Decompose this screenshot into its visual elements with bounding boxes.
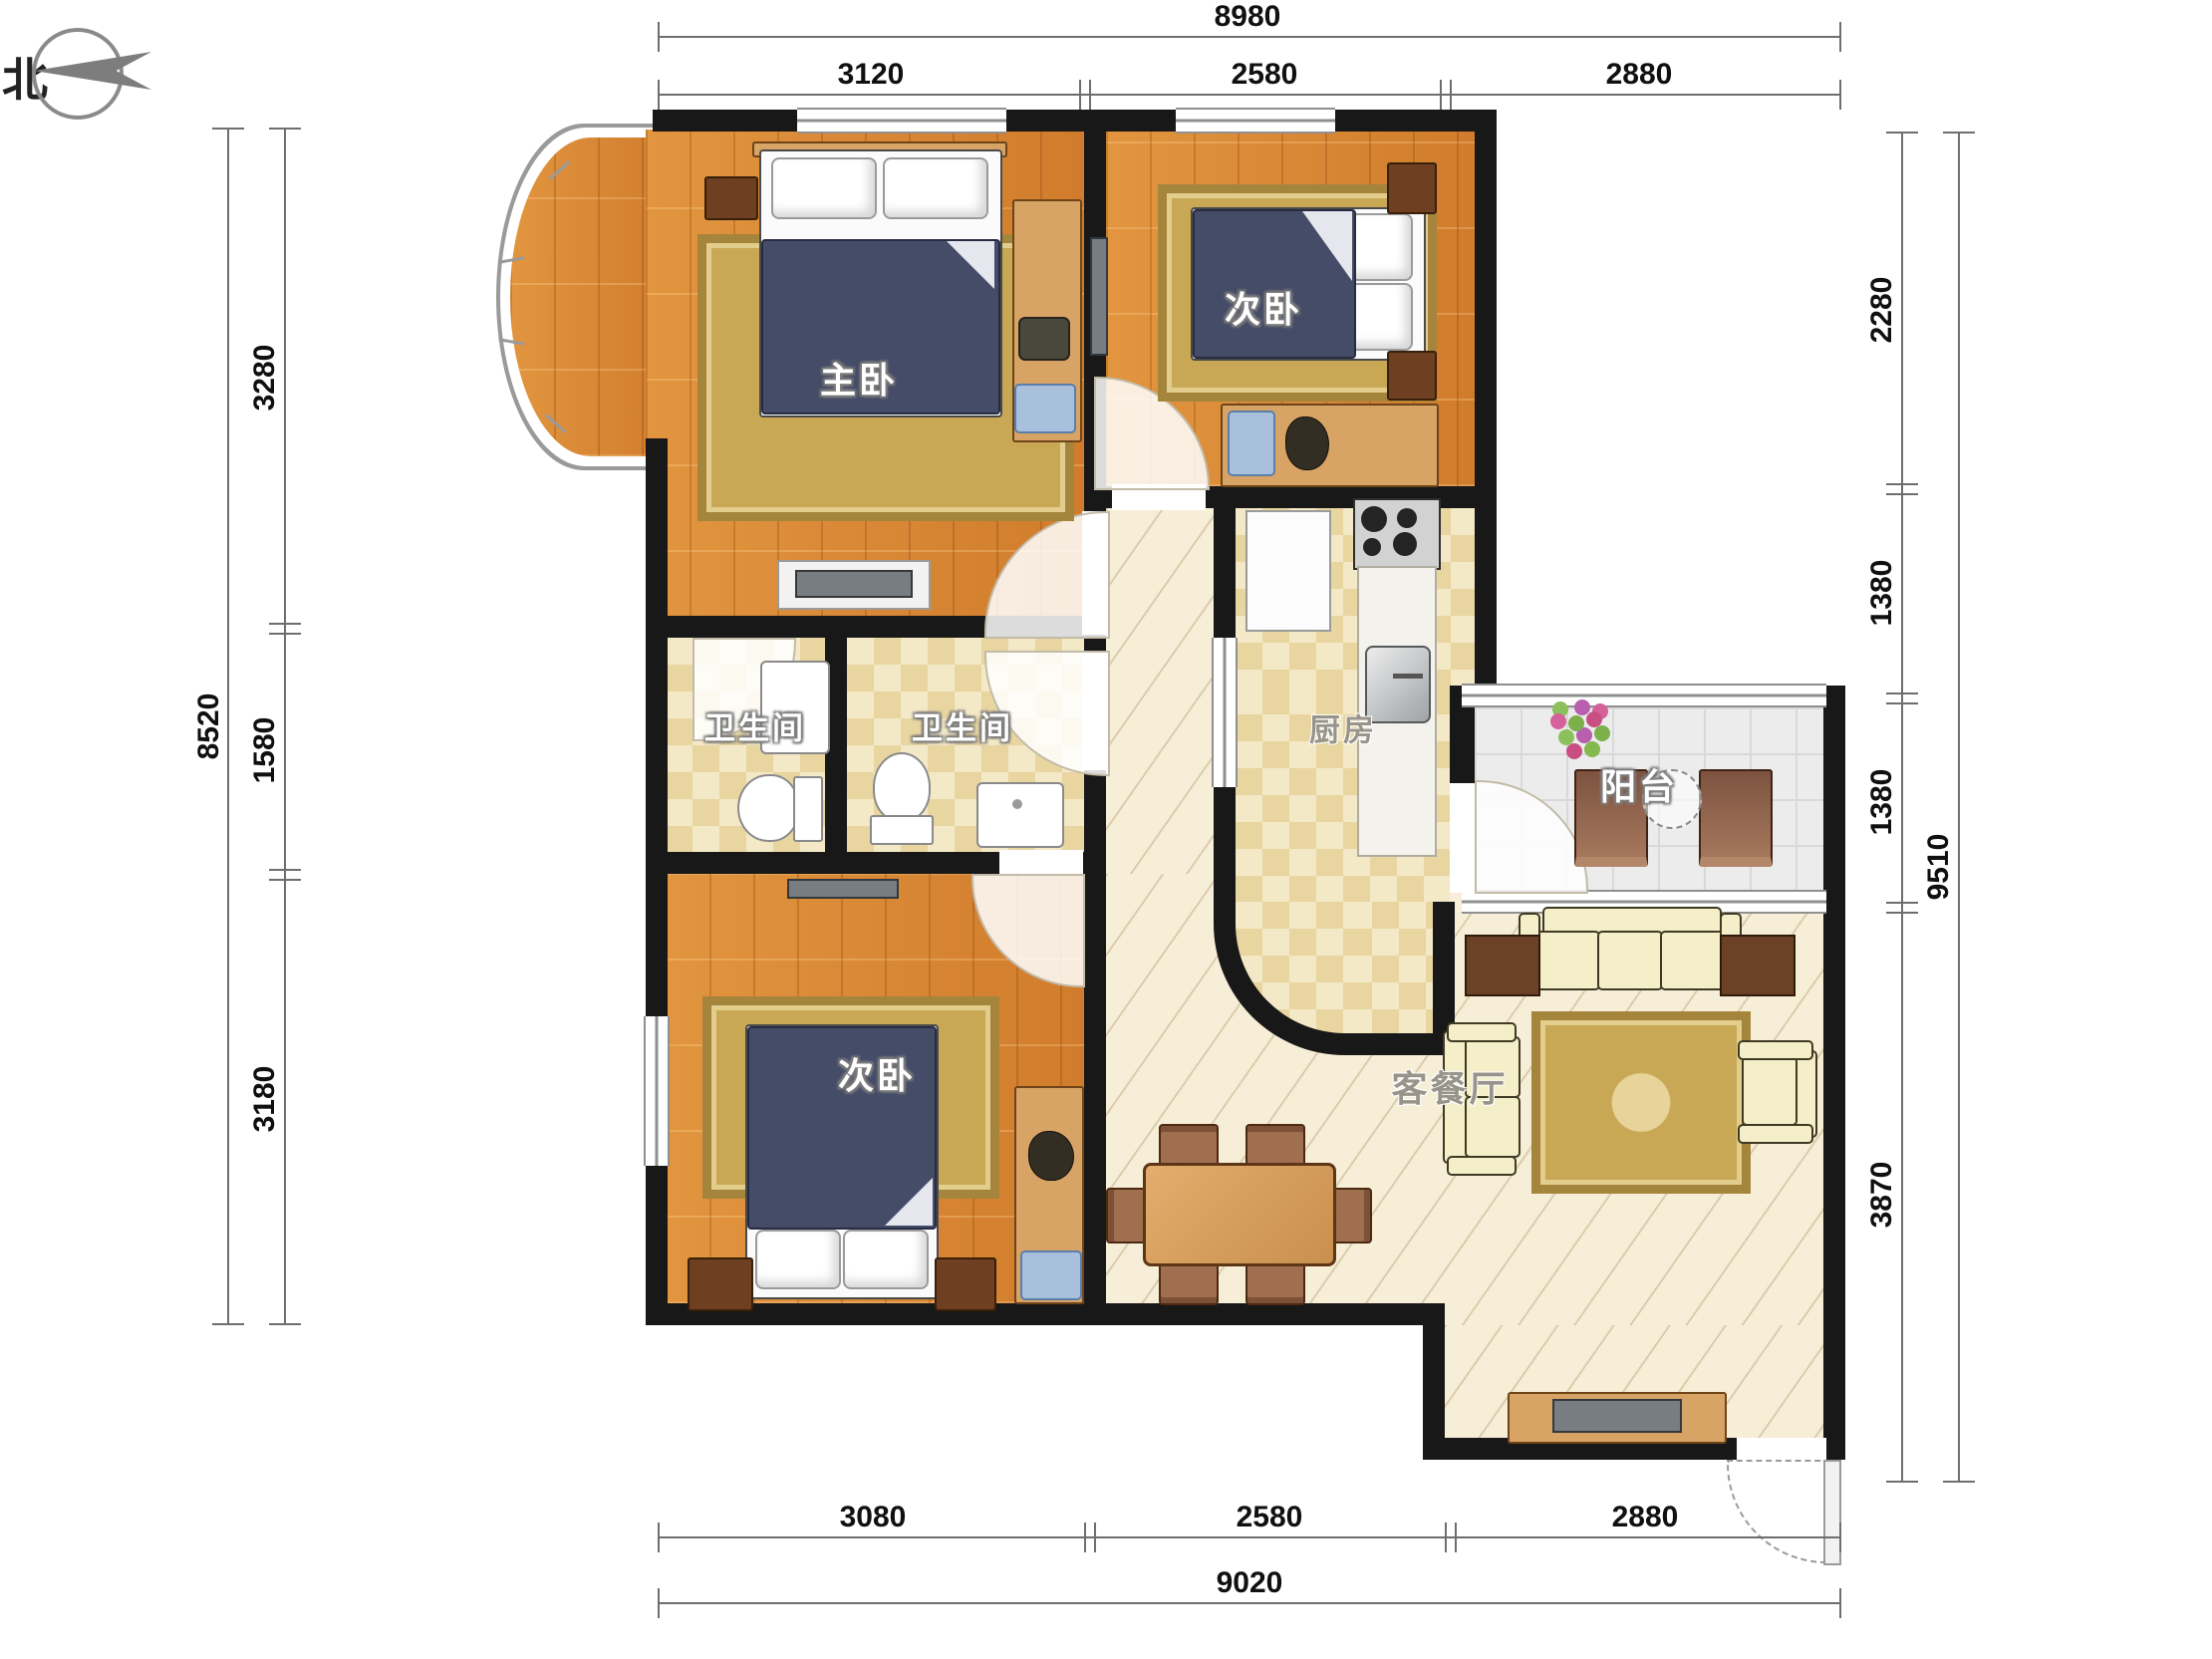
plant-icon [1550,713,1566,729]
dim-tick [1886,702,1918,704]
wall-living-right [1823,902,1845,1460]
armchair-armrest [1738,1040,1813,1060]
wall-left-master [646,438,668,638]
sofa-cushion [1534,931,1600,990]
nightstand [1387,351,1437,401]
desk-chair [1228,411,1275,476]
toilet-tank [870,815,934,845]
entry-door-opening [1737,1438,1826,1460]
dim-tick [269,869,301,871]
wall-tv [1090,237,1108,356]
dim-value: 2280 [1865,277,1899,344]
dining-chair [1159,1124,1219,1168]
dim-tick [1886,1481,1918,1483]
dim-tick [269,623,301,625]
side-table [1720,935,1796,996]
toilet [737,774,799,842]
dim-tick [1886,493,1918,495]
pillow [1349,213,1413,281]
wall-top [653,110,1497,132]
dim-line-right-segments [1901,132,1903,1483]
dim-tick [658,1522,660,1552]
dim-value: 3280 [248,345,282,412]
side-table [1465,935,1540,996]
dim-value: 2880 [1606,58,1673,92]
stove-burner [1361,506,1387,532]
dim-tick [1084,1522,1086,1552]
bathroom-sink [976,782,1064,848]
dim-tick [1886,912,1918,914]
dim-tick [212,1323,244,1325]
pillow [883,157,988,219]
dim-tick [1943,1481,1975,1483]
living-dining-label: 客餐厅 [1391,1071,1508,1107]
dim-line-top-segments [658,94,1841,96]
pillow [1349,283,1413,351]
dim-tick [1839,1588,1841,1618]
dim-value: 1380 [1865,560,1899,627]
dim-line-bottom-total [658,1602,1841,1604]
dim-tick [1455,1522,1457,1552]
living-tv [1552,1399,1682,1433]
wall-step [1423,1303,1445,1460]
dim-value: 2880 [1612,1501,1679,1534]
sink-drain [1012,799,1022,809]
dim-tick [658,1588,660,1618]
kitchen-window [1212,638,1238,787]
dim-line-right-total [1958,132,1960,1483]
dim-line-top-total [658,36,1841,38]
dim-value: 3180 [248,1066,282,1133]
dim-line-left-total [227,128,229,1325]
dim-tick [658,22,660,52]
duvet-fold [1302,211,1352,281]
desk-chair [1020,1250,1082,1300]
dim-tick [212,128,244,130]
nightstand [1387,162,1437,214]
dim-value: 8980 [1215,0,1281,34]
dim-value: 1580 [248,717,282,784]
dim-tick [1440,80,1442,110]
dining-chair [1106,1188,1148,1244]
dining-chair [1159,1261,1219,1305]
master-window [797,108,1006,134]
dim-tick [1839,80,1841,110]
armchair-armrest [1738,1124,1813,1144]
dim-tick [1839,1522,1841,1552]
bathroom-left-label: 卫生间 [704,713,806,744]
master-tv [795,570,913,598]
dining-chair [1245,1124,1305,1168]
second-bedroom-bottom-label: 次卧 [838,1058,916,1094]
nightstand [704,176,758,220]
wall-kitchen-sub-bottom [1345,1033,1455,1055]
bedroom-bottom-tv [787,879,899,899]
nightstand [688,1257,753,1311]
sofa-cushion [1597,931,1663,990]
stove-burner [1393,532,1417,556]
floor-plan-canvas: 北 [0,0,2212,1659]
balcony-label: 阳台 [1600,769,1678,805]
kitchen-faucet [1393,674,1423,679]
dim-line-left-segments [284,128,286,1325]
dim-tick [269,633,301,635]
bathroom-right-label: 卫生间 [912,713,1013,744]
wall-bedroom3-right [1084,874,1106,1325]
entry-door-arc [1727,1460,1830,1563]
wall-balcony-right [1823,686,1845,905]
duvet-fold [885,1178,933,1226]
dim-value: 2580 [1232,58,1298,92]
living-rug [1531,1011,1751,1194]
dim-tick [658,80,660,110]
toilet [873,752,931,822]
second-bedroom-top-label: 次卧 [1225,292,1302,328]
kitchen-label: 厨房 [1309,715,1377,746]
dim-value: 8520 [192,693,226,760]
bag [1285,416,1329,470]
dim-line-bottom-segments [658,1536,1841,1538]
toilet-tank [793,776,823,842]
dim-tick [269,879,301,881]
dining-chair [1330,1188,1372,1244]
wall-dining-bottom [1084,1303,1445,1325]
dim-tick [1450,80,1452,110]
dining-chair [1245,1261,1305,1305]
bedroom3-door-opening [999,850,1083,876]
bedroom-top-window [1176,108,1335,134]
loveseat-armrest [1447,1156,1517,1176]
stove-burner [1363,538,1381,556]
dim-tick [1943,132,1975,134]
wall-right-upper [1475,110,1497,707]
balcony-door-opening [1450,783,1475,893]
dim-tick [1886,692,1918,694]
balcony-chair [1699,769,1773,867]
dim-tick [1886,902,1918,904]
bag [1028,1131,1074,1181]
wall-left-lower [646,616,668,1325]
stove-burner [1397,508,1417,528]
dim-tick [1886,132,1918,134]
dim-value: 3870 [1865,1162,1899,1229]
dim-tick [1089,80,1091,110]
nightstand [935,1257,996,1311]
dim-value: 2580 [1237,1501,1303,1534]
refrigerator [1245,510,1331,632]
dim-tick [269,128,301,130]
balcony-outer-window [1462,684,1826,707]
wall-kitchen-left-upper [1214,508,1236,640]
pillow [755,1230,841,1289]
dim-value: 3080 [840,1501,907,1534]
dim-tick [269,1323,301,1325]
kitchen-sink [1365,646,1431,723]
armchair-cushion [1742,1056,1797,1126]
dim-tick [1079,80,1081,110]
dim-tick [1886,483,1918,485]
desk-chair [1018,317,1070,361]
dim-value: 1380 [1865,769,1899,836]
desk-chair [1014,384,1076,433]
dim-value: 9510 [1922,834,1956,901]
loveseat-armrest [1447,1022,1517,1042]
dim-value: 9020 [1217,1566,1283,1600]
dim-tick [1094,1522,1096,1552]
master-bedroom-label: 主卧 [820,363,898,399]
pillow [843,1230,929,1289]
dining-table [1143,1163,1336,1266]
pillow [771,157,877,219]
sofa-cushion [1660,931,1726,990]
duvet-fold [947,241,994,289]
wall-kitchen-left-lower [1214,785,1236,905]
bedroom-bottom-window [644,1016,670,1166]
dim-value: 3120 [838,58,905,92]
dim-tick [1445,1522,1447,1552]
dim-tick [1839,22,1841,52]
